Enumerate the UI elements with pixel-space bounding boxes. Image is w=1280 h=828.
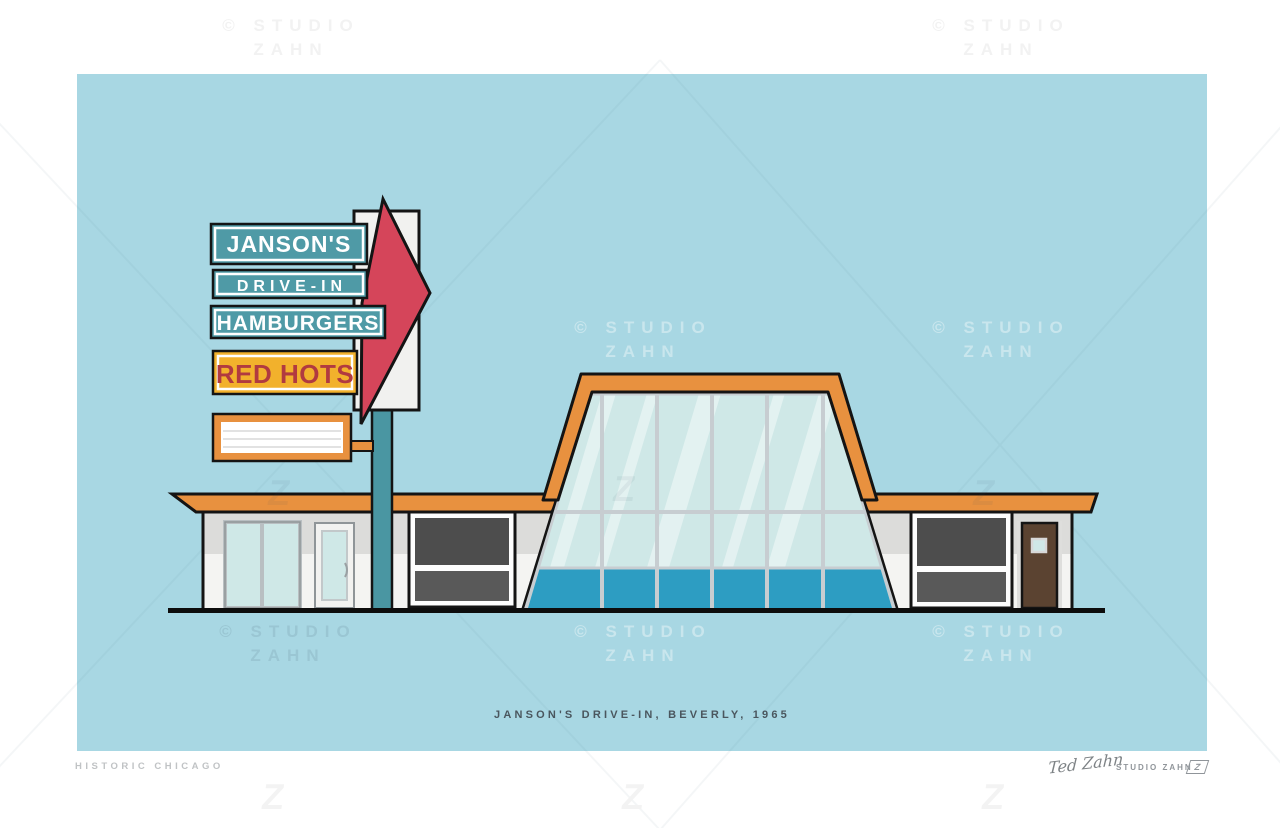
print-caption: JANSON'S DRIVE-IN, BEVERLY, 1965 <box>494 709 790 721</box>
right-dark-window <box>911 512 1012 608</box>
sign-janson-text: JANSON'S <box>227 231 352 257</box>
artist-signature: Ted Zahn <box>1048 749 1124 777</box>
sign-redhots: RED HOTS <box>213 351 357 394</box>
drive-in-illustration: JANSON'S DRIVE-IN HAMBURGERS RED HOTS <box>0 0 1280 828</box>
left-dark-window <box>409 512 515 607</box>
sign-drivein-text: DRIVE-IN <box>237 278 347 295</box>
credit-block: Ted Zahn STUDIO ZAHN Z <box>1040 752 1210 782</box>
sign-drivein: DRIVE-IN <box>213 270 367 298</box>
studio-logo-icon: Z <box>1186 760 1210 774</box>
reader-board <box>213 414 373 461</box>
sign-janson: JANSON'S <box>211 224 367 264</box>
series-label: HISTORIC CHICAGO <box>75 761 224 772</box>
watermark-bottom-right: © STUDIO ZAHN <box>932 620 1069 668</box>
watermark-bottom-left: © STUDIO ZAHN <box>219 620 356 668</box>
watermark-top-left: © STUDIO ZAHN <box>222 14 359 62</box>
studio-label: STUDIO ZAHN <box>1116 763 1193 772</box>
watermark-mid-right: © STUDIO ZAHN <box>932 316 1069 364</box>
watermark-top-right: © STUDIO ZAHN <box>932 14 1069 62</box>
watermark-bottom-center: © STUDIO ZAHN <box>574 620 711 668</box>
ground-line <box>168 608 1105 613</box>
left-roof-fascia <box>172 494 560 512</box>
sign-pole <box>372 404 392 611</box>
left-door <box>315 523 354 608</box>
watermark-mid-center: © STUDIO ZAHN <box>574 316 711 364</box>
sign-hamburgers: HAMBURGERS <box>211 306 385 338</box>
door-window <box>1032 539 1046 552</box>
left-sliding-window <box>225 522 300 608</box>
art-print-page: JANSON'S DRIVE-IN HAMBURGERS RED HOTS <box>0 0 1280 828</box>
sign-redhots-text: RED HOTS <box>216 359 354 389</box>
right-door <box>1017 521 1062 609</box>
sign-hamburgers-text: HAMBURGERS <box>217 312 380 335</box>
